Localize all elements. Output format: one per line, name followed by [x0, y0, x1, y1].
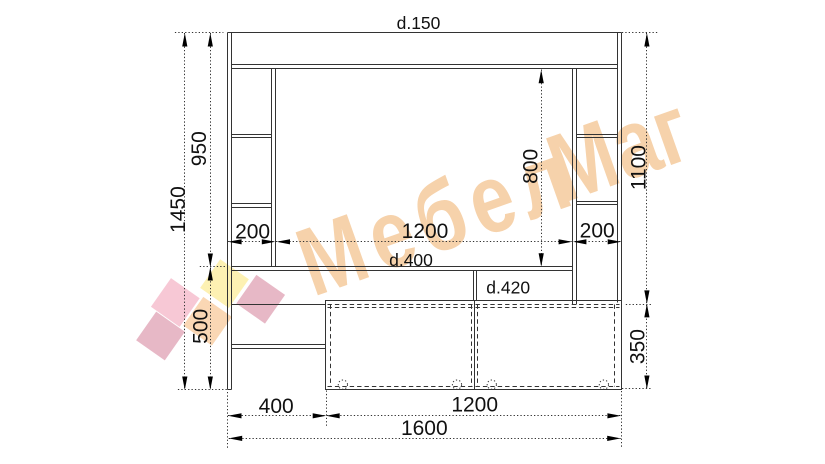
svg-text:1450: 1450	[167, 186, 190, 233]
svg-text:1100: 1100	[628, 145, 651, 190]
svg-text:800: 800	[520, 149, 543, 184]
svg-text:d.420: d.420	[486, 277, 530, 297]
svg-text:350: 350	[627, 329, 650, 364]
svg-text:1200: 1200	[402, 220, 449, 243]
svg-text:500: 500	[190, 309, 213, 344]
svg-text:d.150: d.150	[397, 13, 441, 33]
svg-text:d.400: d.400	[389, 250, 433, 270]
svg-text:950: 950	[188, 131, 211, 166]
svg-text:400: 400	[259, 395, 294, 418]
svg-text:1200: 1200	[451, 394, 498, 417]
svg-text:200: 200	[580, 219, 615, 242]
svg-text:200: 200	[235, 220, 270, 243]
svg-text:1600: 1600	[401, 417, 448, 440]
